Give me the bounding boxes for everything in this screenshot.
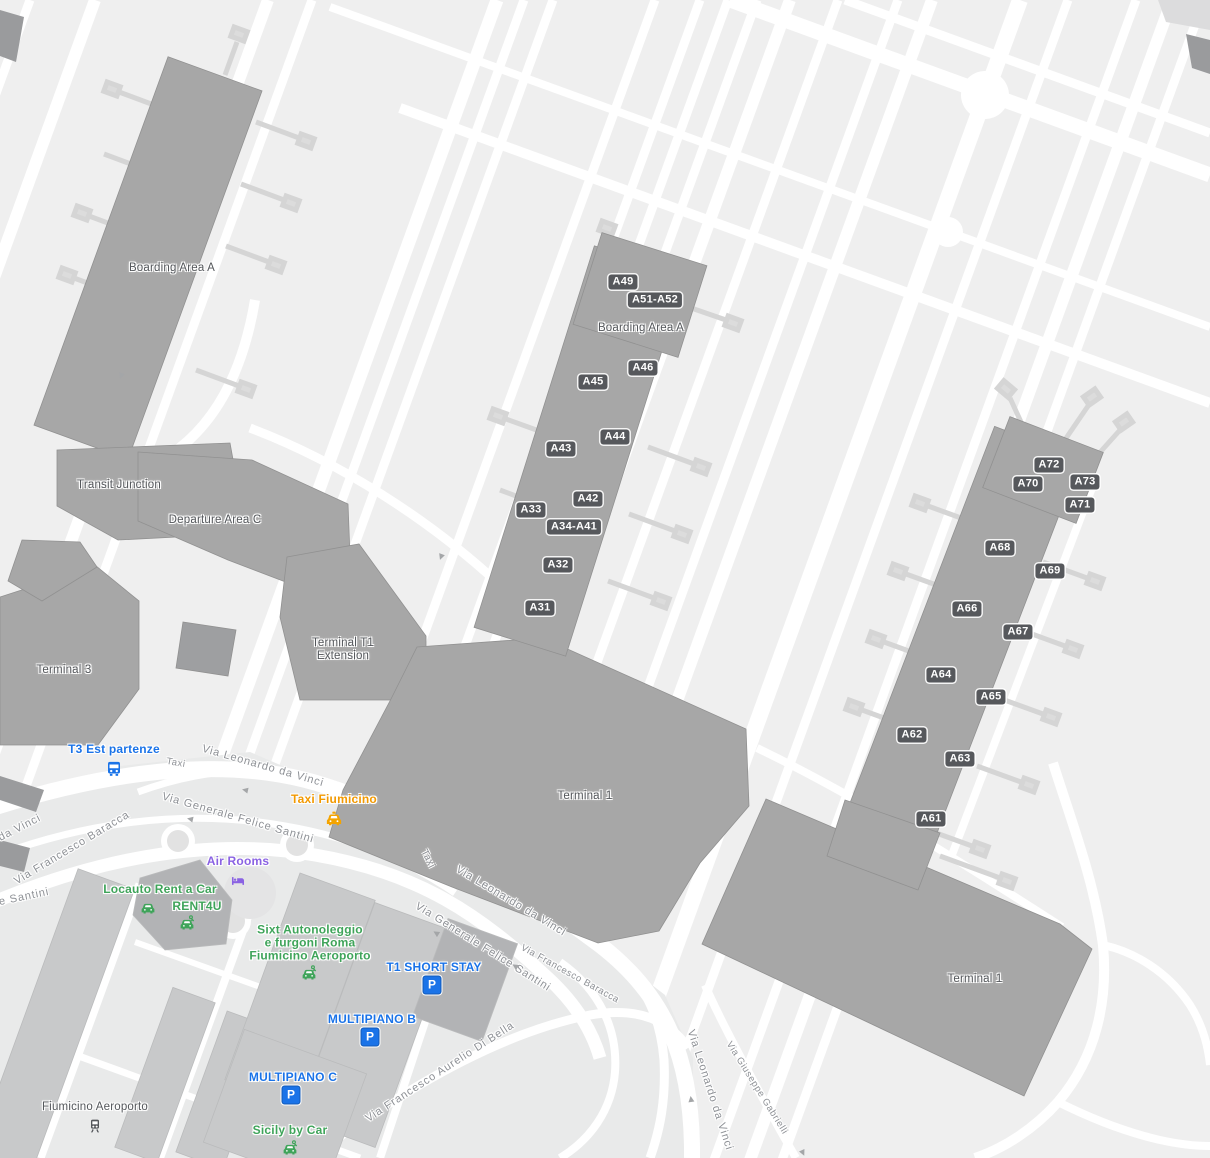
gate-badge-a43[interactable]: A43 (546, 442, 575, 457)
poi-label-t1-short-stay[interactable]: T1 SHORT STAY (386, 960, 481, 974)
gate-badge-a63[interactable]: A63 (945, 752, 974, 767)
car-key-icon[interactable] (301, 965, 318, 982)
gate-badge-a72[interactable]: A72 (1034, 458, 1063, 473)
train-icon[interactable] (87, 1118, 103, 1134)
gate-badge-a45[interactable]: A45 (578, 375, 607, 390)
gate-badge-a51-a52[interactable]: A51-A52 (628, 293, 682, 308)
gate-badge-a67[interactable]: A67 (1003, 625, 1032, 640)
poi-label-rent4u[interactable]: RENT4U (172, 899, 221, 913)
sixt-line3: Fiumicino Aeroporto (249, 950, 370, 963)
terminal-t1-extension-line1: Terminal T1 (312, 637, 374, 650)
parking-icon[interactable]: P (282, 1086, 301, 1105)
area-label-boarding-area-a-west[interactable]: Boarding Area A (129, 262, 215, 274)
gate-badge-a61[interactable]: A61 (916, 812, 945, 827)
gate-badge-a70[interactable]: A70 (1013, 477, 1042, 492)
one-way-arrow-icon (186, 815, 193, 822)
terminal-3-building[interactable] (0, 566, 139, 745)
gate-badge-a62[interactable]: A62 (897, 728, 926, 743)
poi-label-sicily-by-car[interactable]: Sicily by Car (253, 1123, 328, 1137)
area-label-fiumicino-aeroporto-station[interactable]: Fiumicino Aeroporto (42, 1101, 148, 1113)
gate-badge-a73[interactable]: A73 (1070, 475, 1099, 490)
map-base-layer (0, 0, 1210, 1158)
bed-icon[interactable] (230, 873, 247, 890)
one-way-arrow-icon (241, 786, 248, 793)
area-label-boarding-area-a-center[interactable]: Boarding Area A (598, 322, 684, 334)
gate-badge-a34-a41[interactable]: A34-A41 (547, 520, 601, 535)
airport-map: Via Leonardo da Vinci Taxi Via Generale … (0, 0, 1210, 1158)
poi-label-t3-est-partenze[interactable]: T3 Est partenze (68, 742, 160, 756)
poi-label-air-rooms[interactable]: Air Rooms (207, 854, 269, 868)
gate-badge-a66[interactable]: A66 (952, 602, 981, 617)
poi-label-taxi-fiumicino[interactable]: Taxi Fiumicino (291, 792, 377, 806)
gate-badge-a32[interactable]: A32 (543, 558, 572, 573)
airside-service-block[interactable] (176, 622, 236, 676)
gate-badge-a42[interactable]: A42 (573, 492, 602, 507)
gate-badge-a65[interactable]: A65 (976, 690, 1005, 705)
poi-label-locauto[interactable]: Locauto Rent a Car (103, 882, 217, 896)
gate-badge-a71[interactable]: A71 (1065, 498, 1094, 513)
poi-label-sixt[interactable]: Sixt Autonoleggio e furgoni Roma Fiumici… (249, 924, 370, 963)
area-label-transit-junction[interactable]: Transit Junction (77, 479, 161, 491)
bus-icon[interactable] (105, 760, 123, 778)
gate-badge-a44[interactable]: A44 (600, 430, 629, 445)
gate-badge-a69[interactable]: A69 (1035, 564, 1064, 579)
taxi-icon[interactable] (325, 809, 344, 828)
gate-badge-a49[interactable]: A49 (608, 275, 637, 290)
area-label-terminal-3[interactable]: Terminal 3 (36, 664, 91, 676)
area-label-departure-area-c[interactable]: Departure Area C (169, 514, 262, 526)
poi-label-multipiano-c[interactable]: MULTIPIANO C (249, 1070, 337, 1084)
poi-label-multipiano-b[interactable]: MULTIPIANO B (328, 1012, 416, 1026)
rental-car-icon[interactable] (140, 899, 157, 916)
gate-badge-a64[interactable]: A64 (926, 668, 955, 683)
area-label-terminal-1-central[interactable]: Terminal 1 (557, 790, 612, 802)
car-key-icon[interactable] (179, 915, 196, 932)
area-label-terminal-1-southeast[interactable]: Terminal 1 (947, 973, 1002, 985)
parking-icon[interactable]: P (361, 1028, 380, 1047)
car-key-icon[interactable] (282, 1140, 299, 1157)
gate-badge-a31[interactable]: A31 (525, 601, 554, 616)
gate-badge-a33[interactable]: A33 (516, 503, 545, 518)
area-label-terminal-t1-extension[interactable]: Terminal T1 Extension (312, 637, 374, 663)
terminal-t1-extension-line2: Extension (312, 650, 374, 663)
gate-badge-a68[interactable]: A68 (985, 541, 1014, 556)
parking-icon[interactable]: P (423, 976, 442, 995)
gate-badge-a46[interactable]: A46 (628, 361, 657, 376)
one-way-arrow-icon (688, 1096, 695, 1103)
